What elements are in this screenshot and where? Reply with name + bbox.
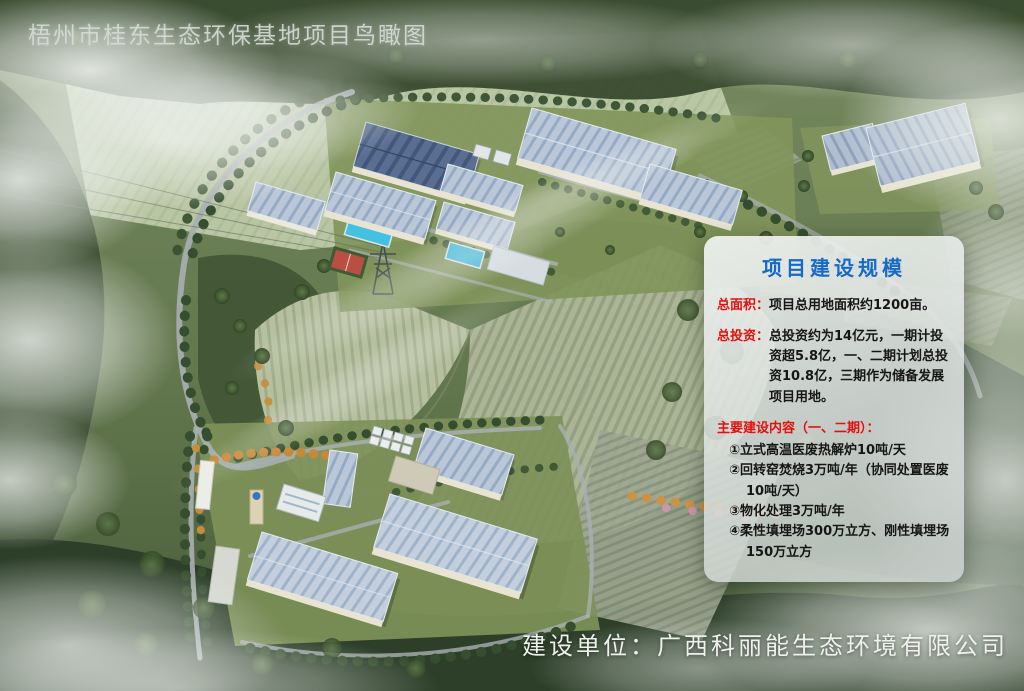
total-area-row: 总面积： 项目总用地面积约1200亩。 — [717, 296, 951, 316]
total-area-label: 总面积： — [717, 296, 769, 316]
construction-item: ①立式高温医废热解炉10吨/天 — [729, 441, 951, 461]
total-area-value: 项目总用地面积约1200亩。 — [769, 296, 951, 316]
construction-item: ③物化处理3万吨/年 — [729, 502, 951, 522]
birdseye-render-page: 梧州市桂东生态环保基地项目鸟瞰图 项目建设规模 总面积： 项目总用地面积约120… — [0, 0, 1024, 691]
page-title: 梧州市桂东生态环保基地项目鸟瞰图 — [28, 16, 428, 50]
construction-unit-credit: 建设单位：广西科丽能生态环境有限公司 — [522, 626, 1008, 661]
panel-header: 项目建设规模 — [717, 252, 951, 281]
main-content-label: 主要建设内容（一、二期）： — [717, 419, 951, 439]
construction-items-list: ①立式高温医废热解炉10吨/天 ②回转窑焚烧3万吨/年（协同处置医废10吨/天）… — [717, 441, 951, 563]
construction-item: ②回转窑焚烧3万吨/年（协同处置医废10吨/天） — [729, 461, 951, 502]
construction-item: ④柔性填埋场300万立方、刚性填埋场150万立方 — [729, 522, 951, 563]
total-investment-value: 总投资约为14亿元，一期计投资超5.8亿，一、二期计划总投资10.8亿，三期作为… — [769, 327, 951, 408]
total-investment-label: 总投资： — [717, 327, 769, 347]
project-scale-panel: 项目建设规模 总面积： 项目总用地面积约1200亩。 总投资： 总投资约为14亿… — [704, 236, 964, 582]
total-investment-row: 总投资： 总投资约为14亿元，一期计投资超5.8亿，一、二期计划总投资10.8亿… — [717, 327, 951, 408]
